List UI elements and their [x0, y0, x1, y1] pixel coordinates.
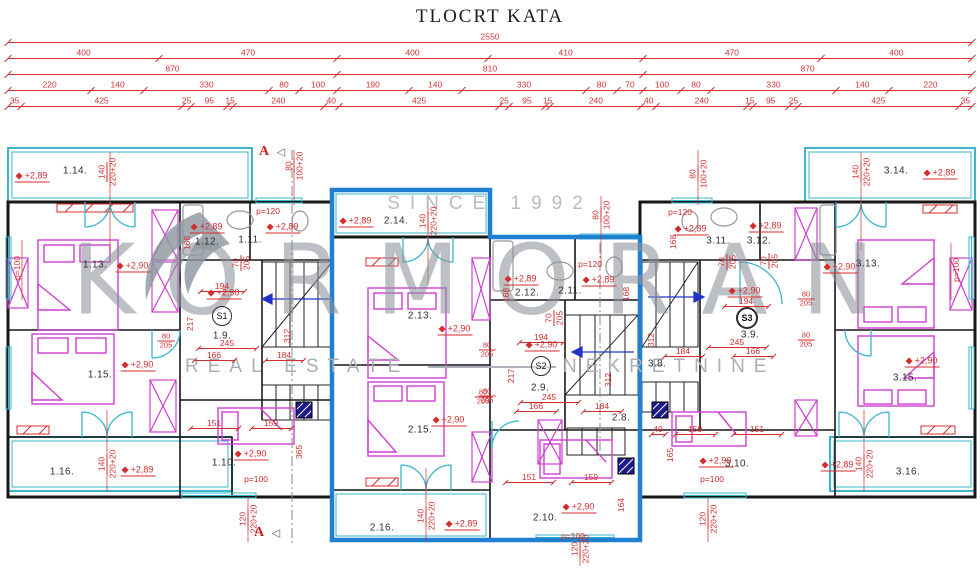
- watermark-brand: KORMORAN: [72, 224, 908, 337]
- watermark-tagline-right: NEKRETNINE: [563, 356, 775, 378]
- watermark-tagline-left: REAL ESTATE: [185, 356, 409, 378]
- floorplan-canvas: TLOCRT KATA 2550400470400410470400870810…: [0, 0, 980, 572]
- watermark-since: SINCE 1992: [387, 193, 593, 215]
- watermark-divider: [428, 366, 556, 368]
